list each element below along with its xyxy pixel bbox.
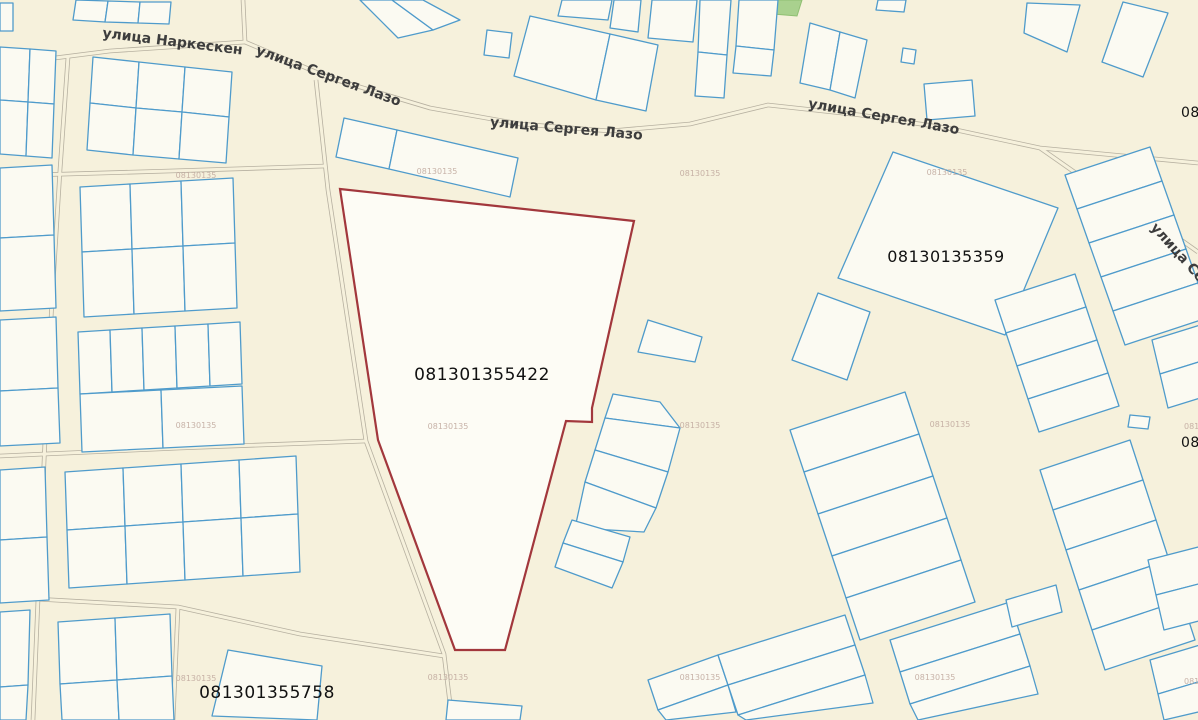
parcel[interactable] bbox=[28, 49, 56, 104]
parcel[interactable] bbox=[484, 30, 512, 58]
parcel[interactable] bbox=[87, 103, 136, 155]
parcel[interactable] bbox=[0, 467, 47, 540]
block-code-label: 08130135 bbox=[915, 673, 956, 682]
parcel[interactable] bbox=[138, 2, 171, 24]
parcel[interactable] bbox=[924, 80, 975, 120]
parcel-number-label: 08 bbox=[1181, 105, 1198, 121]
parcel[interactable] bbox=[610, 0, 641, 32]
parcel[interactable] bbox=[142, 326, 177, 390]
map-canvas[interactable]: 0813013508130135081301350813013508130135… bbox=[0, 0, 1198, 720]
parcel[interactable] bbox=[736, 0, 778, 50]
parcel[interactable] bbox=[65, 468, 125, 530]
parcel[interactable] bbox=[175, 324, 210, 388]
parcel[interactable] bbox=[115, 614, 172, 680]
parcel[interactable] bbox=[80, 390, 163, 452]
parcel[interactable] bbox=[73, 0, 108, 22]
parcel[interactable] bbox=[0, 317, 58, 391]
parcel-number-label: 081301355422 bbox=[414, 365, 550, 385]
parcel[interactable] bbox=[0, 3, 13, 31]
block-code-label: 08130135 bbox=[428, 422, 469, 431]
road-surface bbox=[243, 0, 245, 42]
parcel[interactable] bbox=[123, 464, 183, 526]
parcel[interactable] bbox=[695, 52, 727, 98]
parcel[interactable] bbox=[558, 0, 612, 20]
block-code-label: 08130135 bbox=[176, 421, 217, 430]
parcel[interactable] bbox=[125, 522, 185, 584]
parcel[interactable] bbox=[241, 514, 300, 576]
parcel[interactable] bbox=[0, 235, 56, 311]
parcel[interactable] bbox=[130, 181, 183, 249]
parcel[interactable] bbox=[901, 48, 916, 64]
parcel[interactable] bbox=[82, 249, 134, 317]
parcel[interactable] bbox=[179, 112, 229, 163]
parcel[interactable] bbox=[105, 1, 140, 23]
parcel[interactable] bbox=[183, 518, 243, 580]
parcel[interactable] bbox=[0, 610, 30, 687]
parcel-number-label: 081301355758 bbox=[199, 683, 335, 703]
parcel[interactable] bbox=[876, 0, 906, 12]
block-code-label: 08130135 bbox=[1184, 422, 1198, 431]
parcel[interactable] bbox=[239, 456, 298, 518]
parcel[interactable] bbox=[182, 67, 232, 117]
block-code-label: 08130135 bbox=[930, 420, 971, 429]
parcel[interactable] bbox=[181, 460, 241, 522]
parcel[interactable] bbox=[60, 680, 119, 720]
parcel[interactable] bbox=[1128, 415, 1150, 429]
parcel[interactable] bbox=[183, 243, 237, 311]
parcel[interactable] bbox=[733, 46, 774, 76]
parcel[interactable] bbox=[648, 0, 697, 42]
parcel[interactable] bbox=[698, 0, 731, 55]
parcel[interactable] bbox=[0, 685, 28, 720]
parcel[interactable] bbox=[136, 62, 185, 112]
parcel[interactable] bbox=[78, 330, 112, 394]
parcel[interactable] bbox=[0, 388, 60, 446]
parcel[interactable] bbox=[133, 108, 182, 159]
parcel[interactable] bbox=[110, 328, 144, 392]
parcel[interactable] bbox=[0, 165, 54, 238]
parcel[interactable] bbox=[208, 322, 242, 386]
parcel[interactable] bbox=[90, 57, 139, 108]
block-code-label: 08130135 bbox=[1184, 677, 1198, 686]
block-code-label: 08130135 bbox=[680, 169, 721, 178]
parcel-number-label: 08 bbox=[1181, 435, 1198, 451]
parcel[interactable] bbox=[80, 184, 132, 252]
parcel[interactable] bbox=[58, 618, 117, 684]
block-code-label: 08130135 bbox=[176, 674, 217, 683]
parcel[interactable] bbox=[181, 178, 235, 246]
parcel-number-label: 08130135359 bbox=[887, 247, 1004, 266]
block-code-label: 08130135 bbox=[680, 421, 721, 430]
map-viewport: 0813013508130135081301350813013508130135… bbox=[0, 0, 1198, 720]
block-code-label: 08130135 bbox=[680, 673, 721, 682]
block-code-label: 08130135 bbox=[417, 167, 458, 176]
parcel[interactable] bbox=[132, 246, 185, 314]
parcel[interactable] bbox=[161, 386, 244, 448]
block-code-label: 08130135 bbox=[927, 168, 968, 177]
parcel[interactable] bbox=[117, 676, 174, 720]
parcel[interactable] bbox=[0, 100, 28, 156]
parcel[interactable] bbox=[0, 47, 30, 102]
parcel[interactable] bbox=[67, 526, 127, 588]
parcel[interactable] bbox=[0, 537, 49, 603]
parcel[interactable] bbox=[26, 102, 54, 158]
block-code-label: 08130135 bbox=[176, 171, 217, 180]
block-code-label: 08130135 bbox=[428, 673, 469, 682]
